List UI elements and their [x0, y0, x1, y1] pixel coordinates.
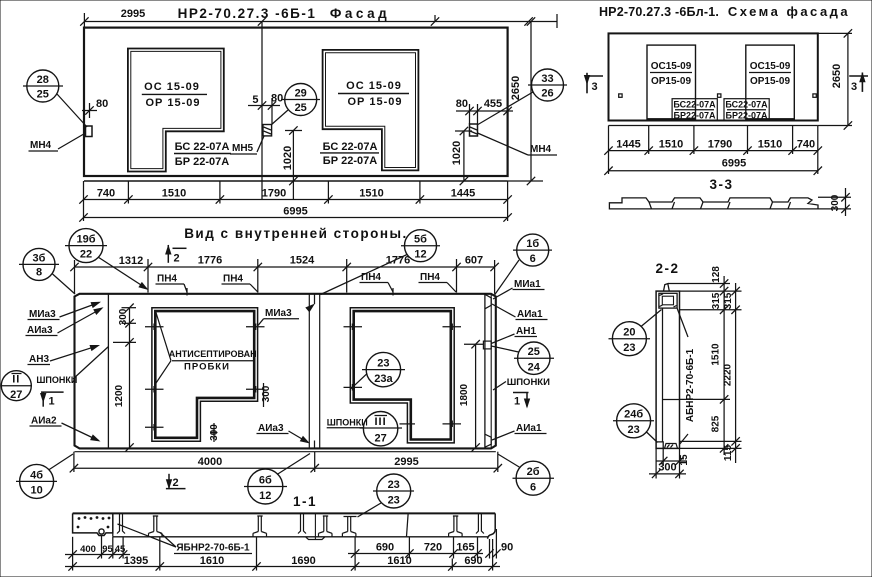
svg-text:12: 12 [414, 249, 426, 261]
svg-text:1510: 1510 [758, 139, 782, 151]
svg-text:1020: 1020 [282, 146, 294, 170]
svg-text:Фасад: Фасад [330, 6, 390, 21]
svg-text:90: 90 [501, 542, 513, 554]
svg-text:ПН4: ПН4 [420, 272, 440, 283]
svg-text:23: 23 [388, 495, 400, 507]
svg-text:1610: 1610 [200, 555, 224, 567]
svg-text:ОС15-09: ОС15-09 [750, 61, 791, 72]
svg-text:1: 1 [49, 396, 55, 408]
svg-text:АБНР2-70-6Б-1: АБНР2-70-6Б-1 [685, 348, 696, 422]
svg-text:6: 6 [530, 482, 536, 494]
svg-text:1510: 1510 [659, 139, 683, 151]
svg-text:ПН4: ПН4 [361, 272, 381, 283]
svg-text:23: 23 [388, 479, 400, 491]
svg-text:1-1: 1-1 [293, 494, 317, 509]
svg-text:2220: 2220 [723, 363, 734, 386]
svg-text:1312: 1312 [119, 255, 143, 267]
svg-text:740: 740 [797, 139, 815, 151]
svg-text:МИа3: МИа3 [265, 308, 292, 319]
svg-text:2995: 2995 [121, 8, 145, 20]
svg-text:128: 128 [711, 266, 722, 283]
svg-text:ОР15-09: ОР15-09 [651, 76, 691, 87]
svg-text:10: 10 [30, 485, 42, 497]
svg-text:690: 690 [464, 555, 482, 567]
svg-text:1445: 1445 [616, 139, 640, 151]
svg-text:22: 22 [80, 249, 92, 261]
svg-text:1б: 1б [526, 238, 539, 250]
svg-text:МИа3: МИа3 [29, 309, 56, 320]
svg-text:БС22-07А: БС22-07А [725, 100, 768, 110]
svg-text:3: 3 [851, 81, 857, 93]
svg-text:1790: 1790 [262, 188, 286, 200]
svg-text:ОС 15-09: ОС 15-09 [346, 80, 402, 92]
svg-text:720: 720 [424, 542, 442, 554]
svg-text:5б: 5б [414, 234, 427, 246]
svg-text:165: 165 [456, 542, 474, 554]
svg-text:23а: 23а [374, 373, 393, 385]
svg-text:ПРОБКИ: ПРОБКИ [184, 362, 230, 373]
svg-text:БС 22-07А: БС 22-07А [323, 141, 378, 153]
svg-text:25: 25 [295, 102, 307, 114]
svg-text:БР22-07А: БР22-07А [674, 111, 716, 121]
svg-text:2995: 2995 [394, 456, 418, 468]
svg-text:2: 2 [174, 253, 180, 265]
svg-text:1510: 1510 [711, 343, 722, 366]
svg-text:300: 300 [261, 385, 272, 402]
svg-text:315: 315 [723, 292, 734, 309]
svg-text:АИа3: АИа3 [258, 423, 284, 434]
svg-text:23: 23 [377, 358, 389, 370]
svg-text:2: 2 [173, 477, 179, 489]
svg-text:3-3: 3-3 [709, 177, 733, 192]
svg-text:ЯБНР2-70-6Б-1: ЯБНР2-70-6Б-1 [176, 543, 250, 554]
svg-text:АН3: АН3 [29, 354, 49, 365]
svg-text:1790: 1790 [708, 139, 732, 151]
svg-text:115: 115 [723, 444, 734, 461]
svg-text:АИа1: АИа1 [516, 423, 542, 434]
svg-text:23: 23 [627, 424, 639, 436]
svg-text:АН1: АН1 [516, 326, 536, 337]
svg-text:25: 25 [37, 89, 49, 101]
svg-text:1800: 1800 [459, 383, 470, 406]
svg-text:80: 80 [96, 98, 108, 110]
svg-text:НР2-70.27.3 -6Бл-1.: НР2-70.27.3 -6Бл-1. [599, 5, 719, 19]
svg-text:Схема фасада: Схема фасада [728, 4, 850, 19]
svg-text:690: 690 [376, 542, 394, 554]
svg-text:БР 22-07А: БР 22-07А [175, 156, 229, 168]
svg-text:80: 80 [271, 93, 283, 105]
svg-text:БР22-07А: БР22-07А [726, 111, 768, 121]
svg-text:3б: 3б [33, 253, 46, 265]
svg-text:5: 5 [252, 94, 258, 106]
svg-text:6б: 6б [259, 475, 272, 487]
svg-text:23: 23 [623, 342, 635, 354]
svg-text:455: 455 [484, 98, 502, 110]
svg-text:ОР 15-09: ОР 15-09 [145, 97, 200, 109]
svg-text:1524: 1524 [290, 255, 315, 267]
svg-text:8: 8 [36, 267, 42, 279]
svg-text:НР2-70.27.3 -6Б-1: НР2-70.27.3 -6Б-1 [178, 6, 317, 21]
svg-text:МН5: МН5 [232, 143, 254, 154]
svg-text:МН4: МН4 [530, 144, 552, 155]
svg-text:ПН4: ПН4 [223, 274, 243, 285]
svg-text:4000: 4000 [198, 456, 222, 468]
svg-text:II: II [12, 374, 20, 386]
svg-text:607: 607 [465, 255, 483, 267]
svg-text:6995: 6995 [722, 158, 746, 170]
svg-text:26: 26 [541, 88, 553, 100]
svg-text:БР 22-07А: БР 22-07А [323, 155, 377, 167]
svg-text:1510: 1510 [359, 188, 383, 200]
svg-text:Вид с внутренней стороны.: Вид с внутренней стороны. [184, 226, 408, 241]
svg-text:300: 300 [658, 462, 676, 474]
svg-text:25: 25 [528, 346, 540, 358]
svg-text:33: 33 [541, 73, 553, 85]
svg-text:ПН4: ПН4 [157, 274, 177, 285]
svg-text:1200: 1200 [114, 384, 125, 407]
svg-text:ШПОНКИ: ШПОНКИ [507, 377, 550, 388]
svg-text:80: 80 [456, 98, 468, 110]
svg-text:1776: 1776 [386, 255, 410, 267]
svg-text:БС22-07А: БС22-07А [673, 100, 716, 110]
svg-text:АИа2: АИа2 [31, 416, 57, 427]
svg-text:АИа1: АИа1 [517, 309, 543, 320]
svg-text:ШПОНКИ: ШПОНКИ [327, 418, 368, 428]
svg-text:ОС15-09: ОС15-09 [651, 61, 692, 72]
svg-text:1610: 1610 [387, 555, 411, 567]
svg-text:МИа1: МИа1 [514, 279, 541, 290]
svg-text:2650: 2650 [831, 64, 843, 88]
svg-text:2650: 2650 [510, 76, 522, 100]
svg-text:400: 400 [80, 544, 96, 555]
svg-text:III: III [375, 416, 387, 428]
svg-text:3: 3 [592, 81, 598, 93]
svg-text:2-2: 2-2 [655, 261, 679, 276]
svg-text:1020: 1020 [451, 141, 463, 165]
svg-text:БС 22-07А: БС 22-07А [175, 141, 230, 153]
svg-text:28: 28 [37, 74, 49, 86]
svg-text:24б: 24б [624, 409, 643, 421]
svg-text:300: 300 [118, 308, 129, 325]
svg-text:300: 300 [209, 424, 220, 441]
svg-text:ОР15-09: ОР15-09 [750, 76, 790, 87]
svg-text:300: 300 [830, 194, 841, 211]
svg-text:1445: 1445 [451, 188, 475, 200]
svg-text:1690: 1690 [291, 555, 315, 567]
svg-text:АНТИСЕПТИРОВАН: АНТИСЕПТИРОВАН [169, 349, 257, 359]
svg-text:29: 29 [295, 88, 307, 100]
svg-text:1: 1 [514, 396, 520, 408]
svg-text:4б: 4б [30, 470, 43, 482]
svg-text:24: 24 [528, 362, 541, 374]
svg-text:1395: 1395 [124, 555, 148, 567]
svg-text:95: 95 [102, 544, 113, 555]
svg-text:6: 6 [530, 253, 536, 265]
svg-text:45: 45 [115, 544, 126, 555]
svg-text:315: 315 [711, 292, 722, 309]
svg-text:27: 27 [374, 433, 386, 445]
svg-text:ОР 15-09: ОР 15-09 [347, 96, 402, 108]
svg-text:20: 20 [623, 327, 635, 339]
svg-text:1776: 1776 [198, 255, 222, 267]
svg-text:АИа3: АИа3 [27, 325, 53, 336]
svg-text:12: 12 [259, 490, 271, 502]
svg-text:2б: 2б [527, 466, 540, 478]
svg-text:825: 825 [711, 415, 722, 432]
svg-text:740: 740 [97, 188, 115, 200]
svg-text:ШПОНКИ: ШПОНКИ [36, 375, 77, 385]
svg-text:19б: 19б [76, 234, 95, 246]
svg-text:27: 27 [10, 389, 22, 401]
svg-text:1510: 1510 [162, 188, 186, 200]
svg-text:МН4: МН4 [30, 140, 52, 151]
svg-text:ОС 15-09: ОС 15-09 [144, 81, 200, 93]
svg-text:6995: 6995 [283, 206, 307, 218]
